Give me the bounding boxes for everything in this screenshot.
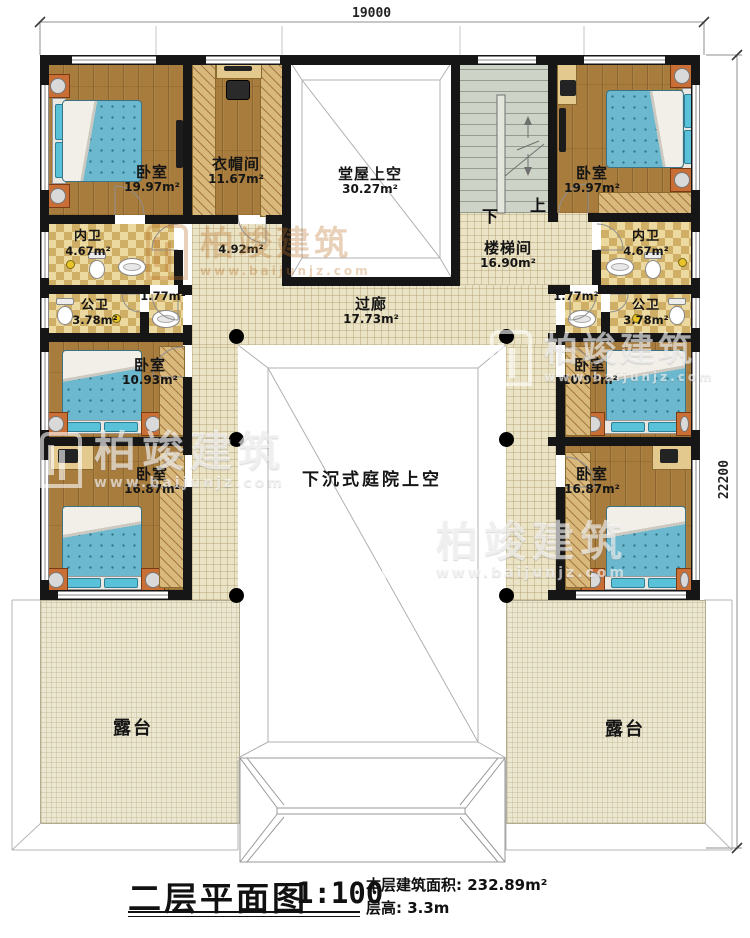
floor-height-text: 层高: 3.3m	[366, 897, 547, 920]
room-name: 衣帽间	[208, 156, 264, 173]
room-area: 19.97m²	[124, 181, 180, 195]
room-area: 17.73m²	[343, 313, 399, 327]
column	[229, 432, 244, 447]
floor-plan: 卧室 19.97m² 衣帽间 11.67m² 堂屋上空 30.27m² 楼梯间 …	[0, 0, 750, 938]
wall	[548, 63, 557, 213]
room-label-cloakroom: 衣帽间 11.67m²	[208, 156, 264, 187]
room-name: 过廊	[343, 296, 399, 313]
room-area: 1.77m²	[553, 290, 598, 303]
window	[41, 298, 49, 328]
window	[41, 352, 49, 430]
wall	[140, 312, 149, 333]
room-name: 卧室	[124, 164, 180, 181]
column	[499, 432, 514, 447]
room-area: 16.87m²	[124, 483, 180, 497]
room-name: 露台	[113, 719, 153, 740]
room-name: 公卫	[623, 299, 668, 314]
room-area: 3.78m²	[623, 314, 668, 327]
room-label-bedroom-top-right: 卧室 19.97m²	[564, 165, 620, 196]
wall	[40, 437, 192, 446]
wall	[282, 63, 291, 285]
wall	[556, 487, 565, 590]
room-label-vestibule-left: 1.77m²	[140, 290, 185, 303]
room-label-bedroom-mid-left: 卧室 10.93m²	[122, 357, 178, 388]
room-area: 16.90m²	[480, 257, 536, 271]
wall	[588, 213, 700, 222]
room-area: 3.78m²	[72, 314, 117, 327]
wall	[174, 250, 183, 285]
porch-roof	[240, 758, 505, 862]
window	[58, 591, 168, 599]
room-area: 10.93m²	[562, 374, 618, 388]
room-area: 4.67m²	[623, 245, 668, 258]
wall	[183, 325, 192, 345]
wall	[548, 437, 700, 446]
wall	[40, 285, 150, 294]
room-name: 下沉式庭院上空	[302, 471, 442, 491]
column	[499, 329, 514, 344]
window	[584, 56, 665, 64]
wall	[145, 215, 238, 224]
room-area: 1.77m²	[140, 290, 185, 303]
room-area: 11.67m²	[208, 173, 264, 187]
room-label-bath-public-right: 公卫 3.78m²	[623, 299, 668, 327]
room-name: 卧室	[564, 165, 620, 182]
room-name: 卧室	[564, 466, 620, 483]
room-area: 10.93m²	[122, 374, 178, 388]
room-label-bedroom-low-left: 卧室 16.87m²	[124, 466, 180, 497]
window	[206, 56, 280, 64]
column	[499, 588, 514, 603]
wall	[282, 277, 460, 286]
wall	[40, 333, 192, 342]
room-name: 堂屋上空	[338, 166, 402, 183]
window	[478, 56, 536, 64]
window	[72, 56, 156, 64]
window	[692, 85, 700, 190]
room-label-bedroom-low-right: 卧室 16.87m²	[564, 466, 620, 497]
window	[692, 232, 700, 278]
window	[692, 298, 700, 328]
room-label-bath-private-right: 内卫 4.67m²	[623, 230, 668, 258]
wall	[40, 215, 115, 224]
wall	[266, 215, 291, 224]
room-name: 内卫	[623, 230, 668, 245]
window	[41, 85, 49, 190]
room-label-bedroom-mid-right: 卧室 10.93m²	[562, 357, 618, 388]
wall	[451, 63, 460, 277]
room-area: 4.67m²	[65, 245, 110, 258]
window	[41, 460, 49, 580]
plan-info: 本层建筑面积: 232.89m² 层高: 3.3m	[366, 874, 547, 919]
room-name: 卧室	[124, 466, 180, 483]
room-name: 卧室	[562, 357, 618, 374]
wall	[592, 250, 601, 285]
room-name: 楼梯间	[480, 240, 536, 257]
wall	[556, 325, 565, 345]
room-label-courtyard-void: 下沉式庭院上空	[302, 471, 442, 491]
room-label-corridor: 过廊 17.73m²	[343, 296, 399, 327]
wall	[598, 285, 700, 294]
room-name: 卧室	[122, 357, 178, 374]
room-label-bath-private-left: 内卫 4.67m²	[65, 230, 110, 258]
column	[229, 329, 244, 344]
window	[41, 232, 49, 278]
room-name: 内卫	[65, 230, 110, 245]
room-area: 16.87m²	[564, 483, 620, 497]
stairs-down-label: 下	[482, 203, 498, 227]
wall	[548, 333, 700, 342]
window	[692, 460, 700, 580]
stairs-up-label: 上	[530, 192, 546, 216]
wall	[601, 312, 610, 333]
room-label-hall-left: 4.92m²	[218, 243, 263, 256]
linework-layer	[0, 0, 750, 938]
wall	[183, 487, 192, 590]
room-label-bedroom-top-left: 卧室 19.97m²	[124, 164, 180, 195]
room-label-terrace-right: 露台	[605, 720, 645, 741]
room-label-terrace-left: 露台	[113, 719, 153, 740]
wall	[183, 63, 192, 215]
dimension-width: 19000	[352, 6, 391, 21]
column	[229, 588, 244, 603]
window	[576, 591, 686, 599]
window	[692, 352, 700, 430]
room-name: 露台	[605, 720, 645, 741]
room-area: 4.92m²	[218, 243, 263, 256]
title-underline	[128, 916, 360, 917]
room-label-hall-void: 堂屋上空 30.27m²	[338, 166, 402, 197]
wall	[548, 213, 558, 222]
room-label-stairwell: 楼梯间 16.90m²	[480, 240, 536, 271]
room-area: 19.97m²	[564, 182, 620, 196]
title-underline	[128, 911, 360, 913]
room-label-vestibule-right: 1.77m²	[553, 290, 598, 303]
room-label-bath-public-left: 公卫 3.78m²	[72, 299, 117, 327]
dimension-height: 22200	[717, 460, 732, 499]
room-area: 30.27m²	[338, 183, 402, 197]
room-name: 公卫	[72, 299, 117, 314]
floor-area-text: 本层建筑面积: 232.89m²	[366, 874, 547, 897]
